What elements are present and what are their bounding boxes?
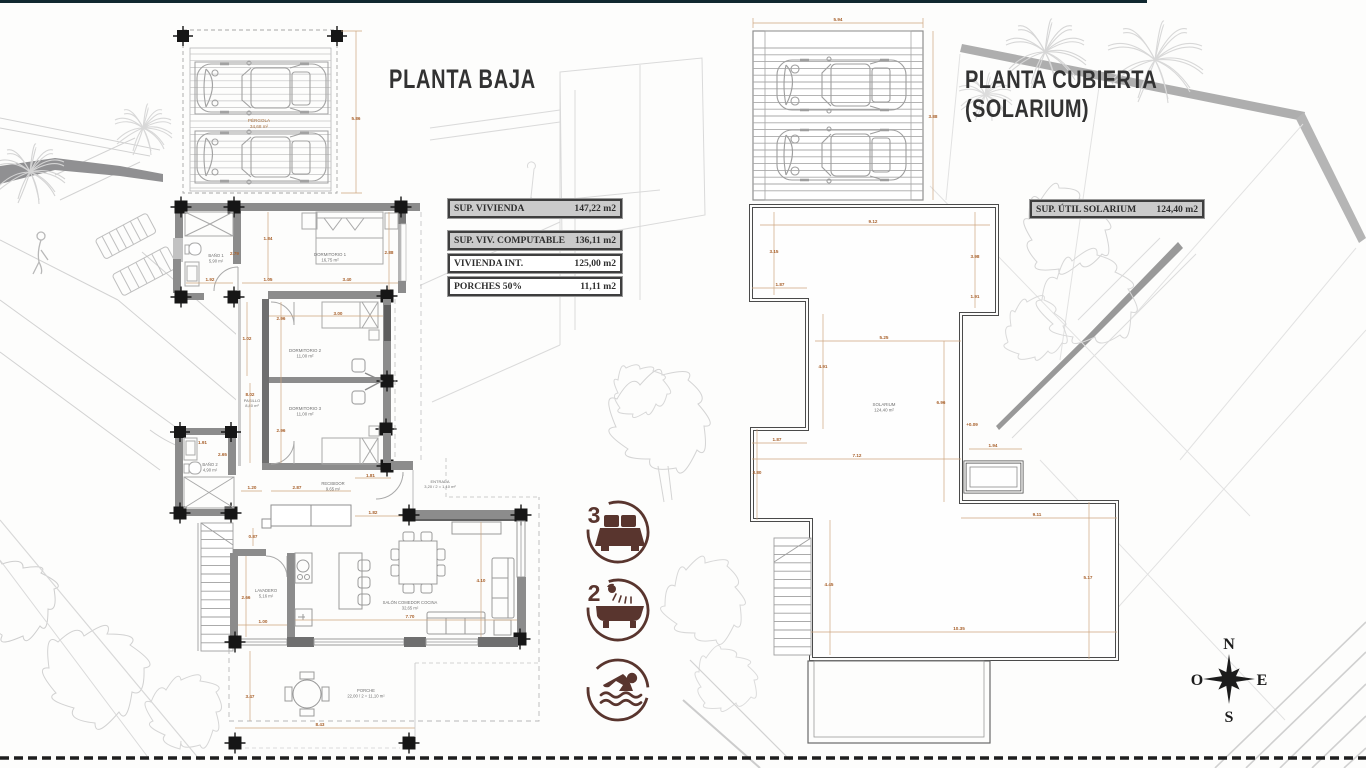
svg-text:E: E <box>1257 672 1268 689</box>
svg-text:3: 3 <box>588 502 601 528</box>
svg-text:O: O <box>1191 672 1203 689</box>
svg-text:S: S <box>1225 709 1234 726</box>
svg-text:N: N <box>1223 636 1235 653</box>
svg-text:2: 2 <box>588 580 601 606</box>
